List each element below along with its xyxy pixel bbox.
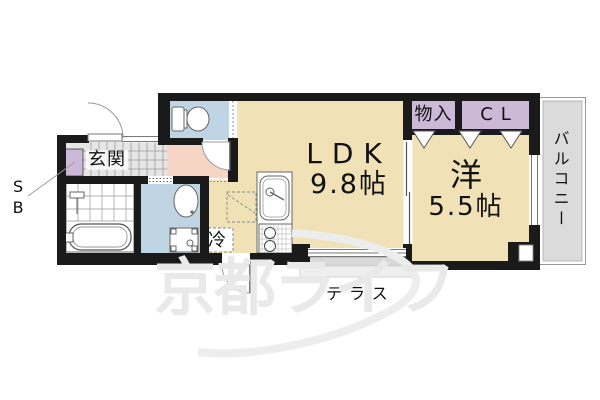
closet-label: CL (462, 105, 529, 125)
ldk-size: 9.8帖 (290, 170, 408, 200)
refrigerator-label: 冷 (208, 231, 227, 251)
entrance-door (88, 103, 123, 141)
pillar-block (519, 245, 533, 261)
floor-plan: 京都ライフ LDK 9.8帖 洋 5.5帖 物入 CL 玄関 冷 バルコニー S… (0, 0, 600, 400)
toilet-ldk-partition-dashed (229, 101, 237, 138)
wash-basin (174, 185, 198, 217)
ldk-name: LDK (290, 139, 408, 170)
window-western-balcony (529, 155, 540, 225)
shower-faucet (70, 192, 84, 198)
washing-machine-pan (170, 228, 198, 252)
kitchen-sink (260, 176, 289, 220)
terrace-label: テラス (326, 285, 395, 303)
western-name: 洋 (415, 158, 517, 193)
toilet-fixture (172, 107, 209, 131)
washroom-sliding-door (148, 176, 173, 184)
watermark-text: 京都ライフ (154, 254, 454, 322)
balcony-label: バルコニー (551, 130, 569, 280)
burner-icon (265, 228, 276, 239)
ldk-room-label: LDK 9.8帖 (290, 139, 408, 199)
storage-label: 物入 (412, 105, 455, 125)
shoe-box-label: SB (9, 177, 27, 221)
entrance-label: 玄関 (86, 150, 128, 170)
kitchen-unit (257, 172, 292, 253)
bathroom (64, 183, 134, 252)
window-entrance-side (122, 136, 158, 143)
stove (259, 224, 292, 253)
western-size: 5.5帖 (415, 193, 517, 222)
burner-icon (265, 241, 276, 252)
western-room-label: 洋 5.5帖 (415, 158, 517, 222)
